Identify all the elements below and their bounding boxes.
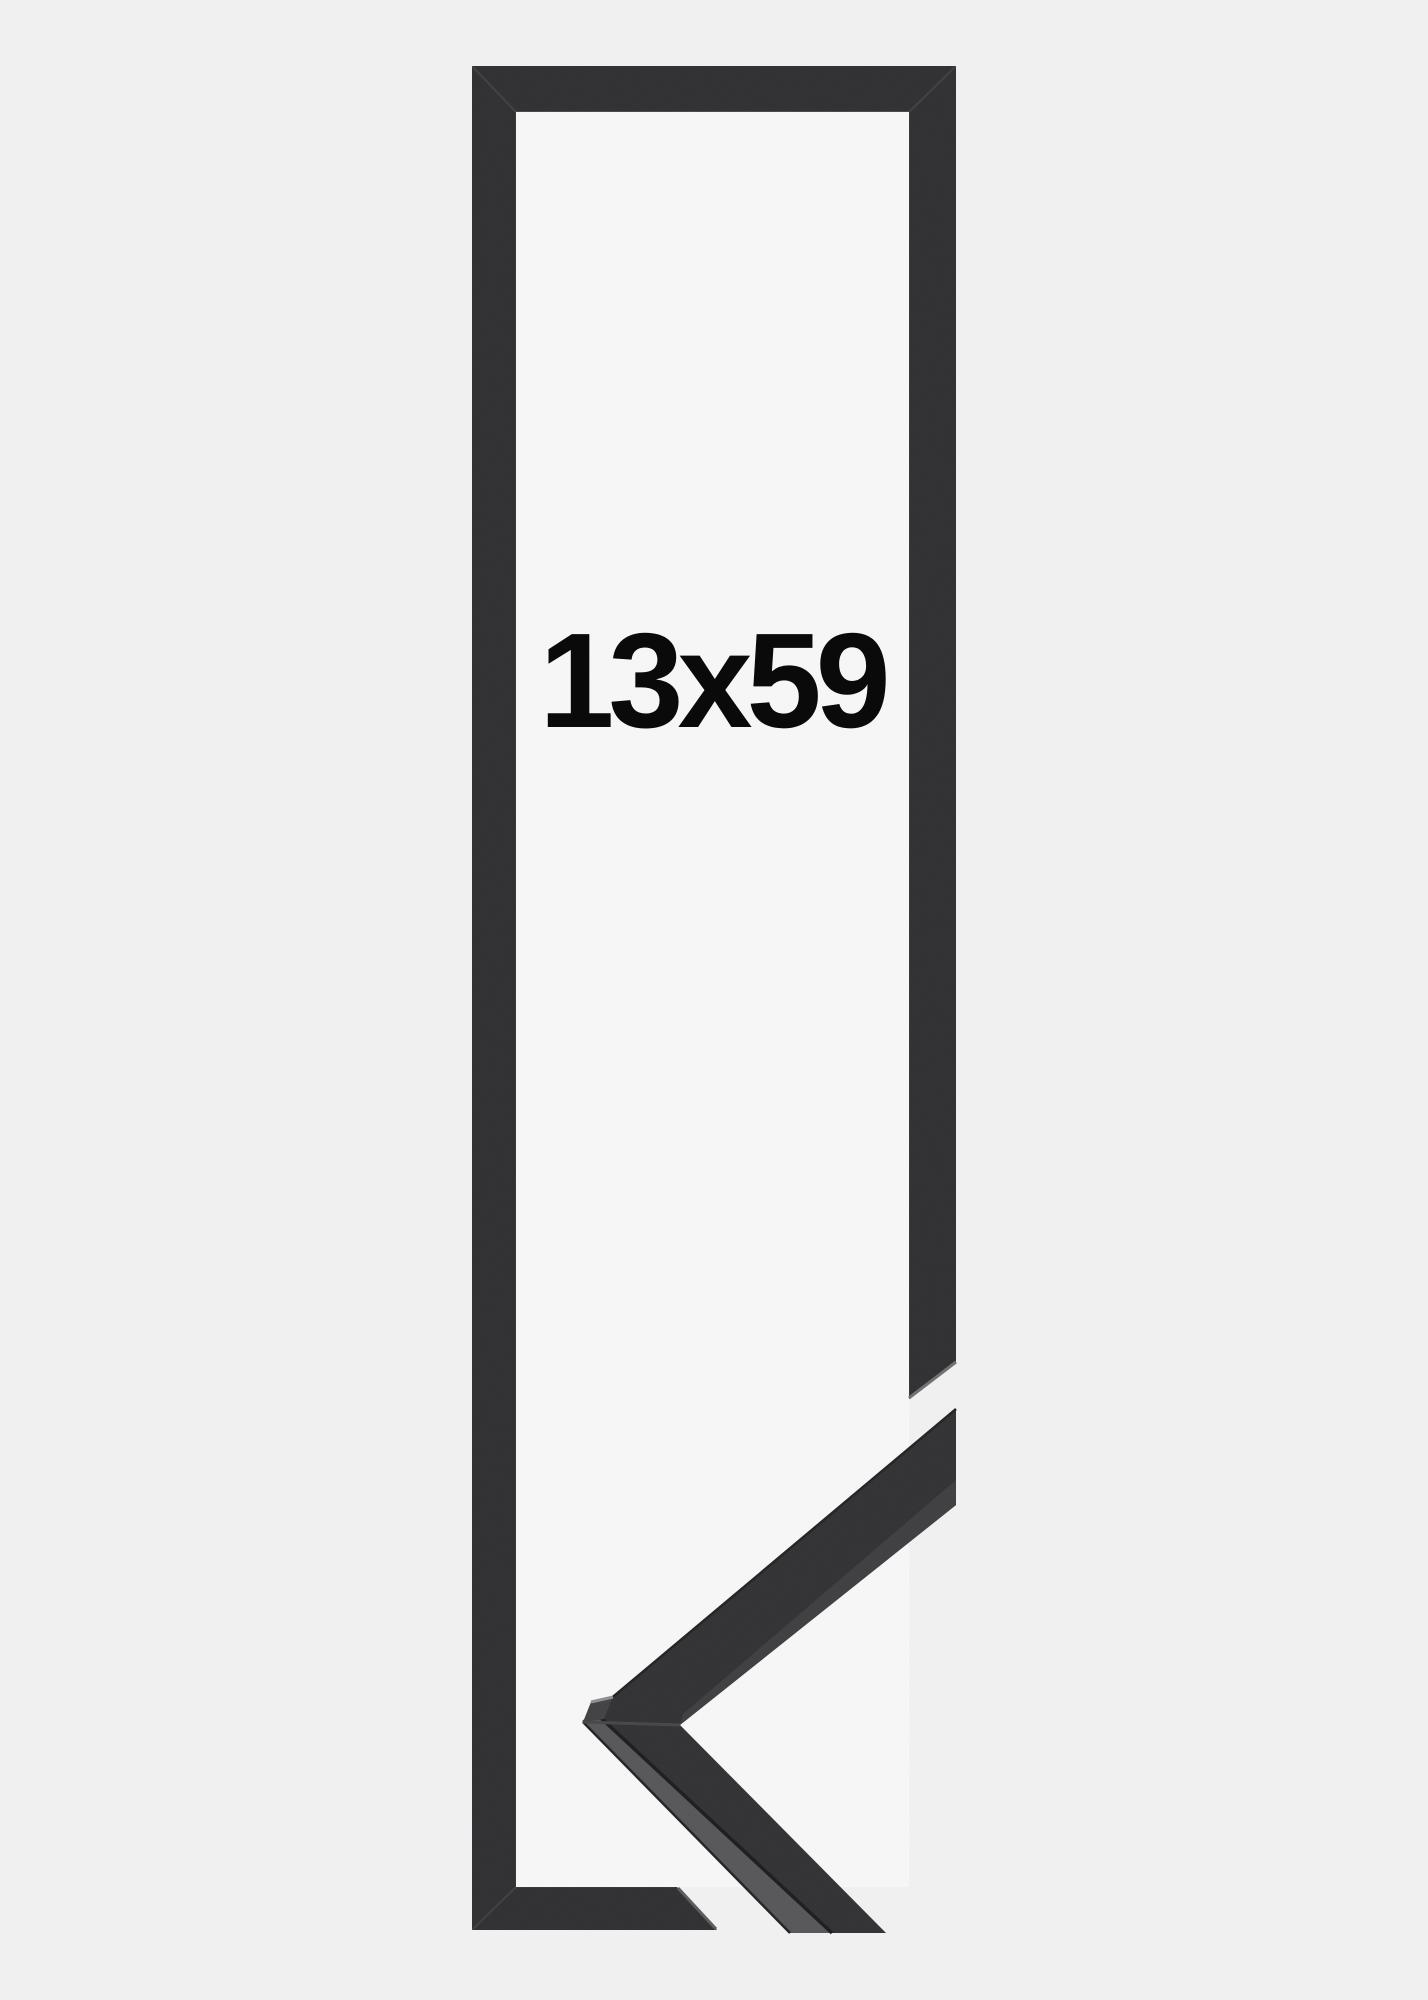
film-grain-overlay [0,0,1428,2000]
frame-illustration [0,0,1428,2000]
frame-product-image: 13x59 [0,0,1428,2000]
frame-size-label: 13x59 [512,613,912,748]
